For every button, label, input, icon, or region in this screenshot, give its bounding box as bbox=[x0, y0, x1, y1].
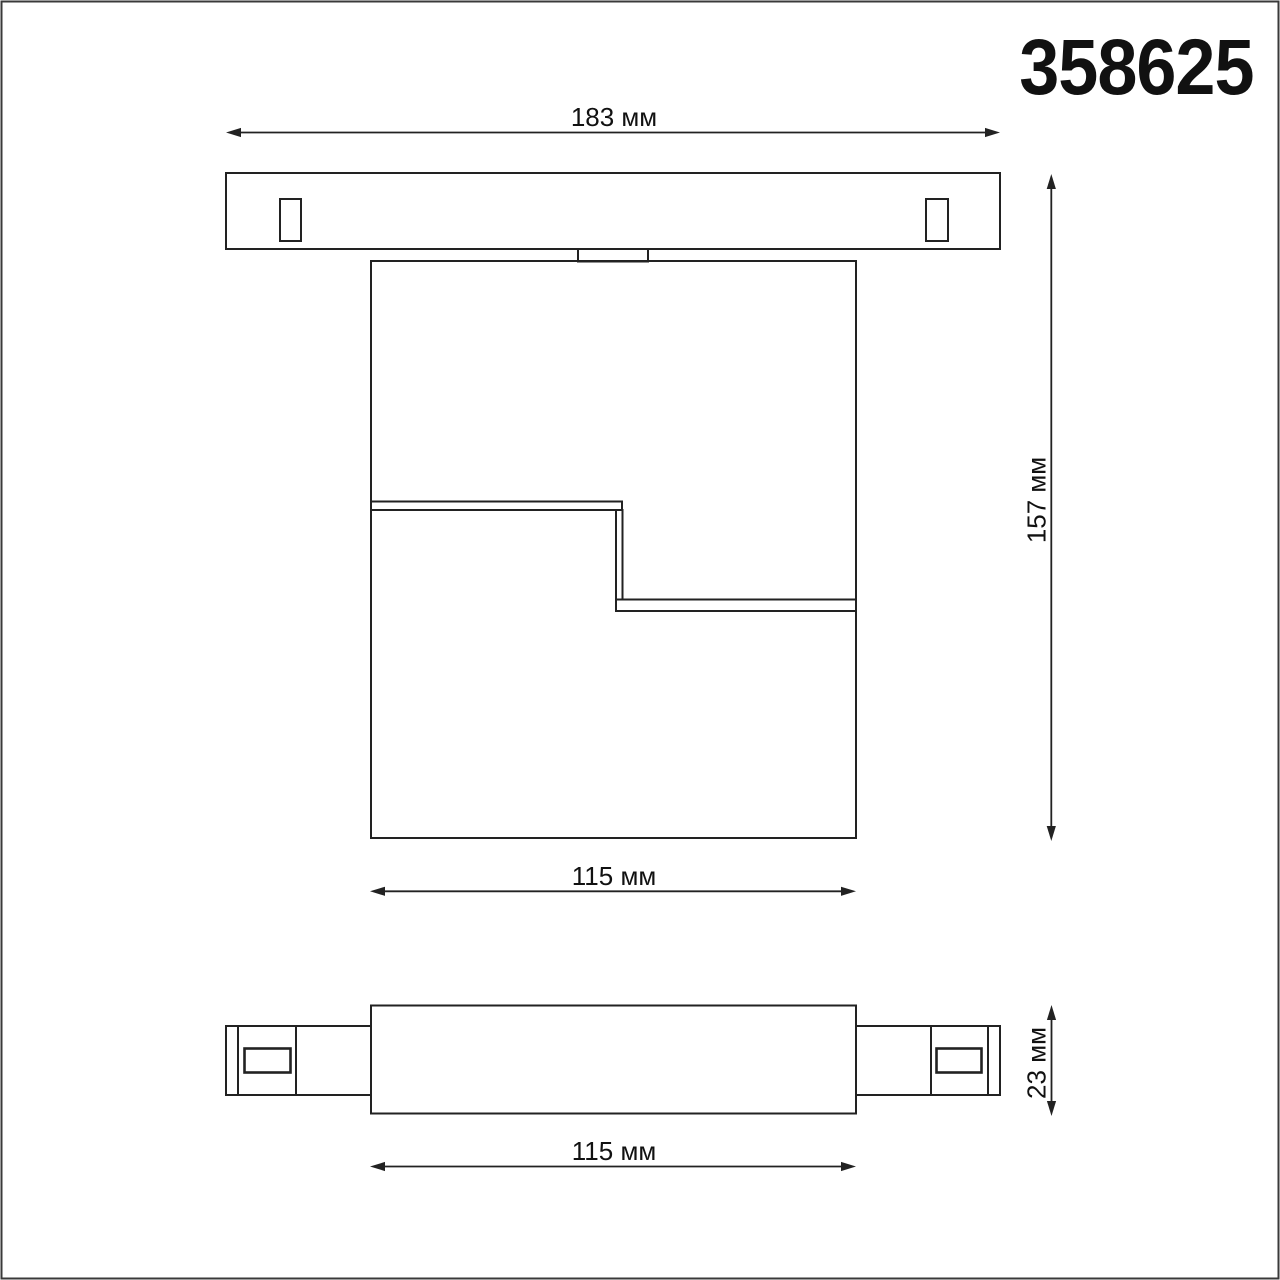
svg-text:23 мм: 23 мм bbox=[1022, 1027, 1052, 1099]
svg-text:115 мм: 115 мм bbox=[572, 861, 656, 891]
svg-text:358625: 358625 bbox=[1019, 23, 1253, 112]
svg-text:115 мм: 115 мм bbox=[572, 1136, 656, 1166]
svg-text:183 мм: 183 мм bbox=[571, 102, 657, 132]
svg-text:157 мм: 157 мм bbox=[1022, 457, 1052, 543]
